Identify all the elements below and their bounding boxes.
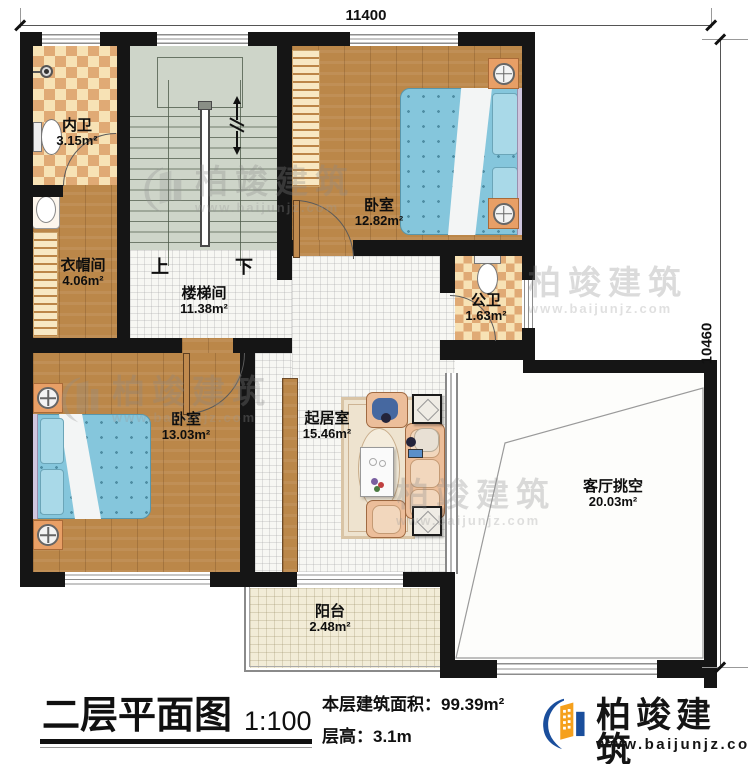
stair-railing <box>200 104 210 247</box>
stair-down-label: 下 <box>235 253 253 279</box>
room-label-living-room: 起居室15.46m² <box>303 410 351 442</box>
wall-mid-left <box>20 338 182 353</box>
nightstand <box>488 58 519 89</box>
window <box>42 32 100 46</box>
washbasin-icon <box>36 196 56 223</box>
bedroom-left-bed <box>33 414 151 519</box>
room-label-public-bath: 公卫1.63m² <box>465 292 506 324</box>
room-label-stairwell: 楼梯间11.38m² <box>180 285 228 317</box>
window <box>157 32 248 46</box>
stair-up-label: 上 <box>151 253 169 279</box>
dimension-width: 11400 <box>316 7 416 24</box>
brand-website: www.baijunjz.com <box>596 737 750 752</box>
void-outline <box>455 373 705 661</box>
wall-bedroomleft-right <box>240 353 255 573</box>
watermark: 柏竣建筑www.baijunjz.com <box>528 266 688 315</box>
side-table <box>412 506 442 536</box>
room-label-void: 客厅挑空20.03m² <box>583 478 643 510</box>
wall-mid-right <box>233 338 292 353</box>
bedroom-top-wardrobe <box>292 50 320 187</box>
wall-void-bottom-b <box>657 660 704 678</box>
wall-right-upper <box>522 32 535 250</box>
nightstand <box>33 520 63 550</box>
dimension-line-top <box>20 25 712 26</box>
wall-publicbath-left <box>440 240 455 293</box>
brand-name: 柏竣建筑 <box>596 698 750 764</box>
cloakroom-wardrobe <box>33 232 58 337</box>
floor-area-text: 本层建筑面积：99.39m² <box>322 696 504 713</box>
dimension-line-right <box>720 40 721 668</box>
window <box>497 660 657 678</box>
wall-void-right <box>704 360 717 688</box>
room-label-inner-bath: 内卫3.15m² <box>56 117 97 149</box>
bed-headboard <box>33 414 38 519</box>
floor-plan-canvas: 上 下 <box>0 0 750 764</box>
window <box>65 572 210 587</box>
stair-up-arrow-icon <box>233 96 241 104</box>
pillow <box>40 418 64 464</box>
void-railing <box>445 373 458 574</box>
wall-stair-left <box>117 32 130 340</box>
door-leaf <box>293 200 300 258</box>
person-sitting-icon <box>372 396 400 426</box>
wall-bottom-b <box>403 572 455 587</box>
room-label-bedroom-top: 卧室12.82m² <box>355 197 403 229</box>
wall-bedroomtop-bottom-a <box>277 240 293 256</box>
wall-publicbath-bottom <box>440 340 535 360</box>
stair-railing-cap <box>198 101 212 110</box>
wall-bedroomtop-bottom-b <box>353 240 522 256</box>
stair-down-arrow-icon <box>233 147 241 155</box>
balcony-door <box>297 572 403 587</box>
window <box>350 32 458 46</box>
coffee-table <box>360 447 394 497</box>
wall-innerbath-bottom <box>33 185 63 197</box>
side-table <box>412 394 442 424</box>
title-underline <box>40 739 312 744</box>
cabinet-strip <box>282 378 298 573</box>
room-label-balcony: 阳台2.48m² <box>309 603 350 635</box>
brand-logo-icon <box>536 692 592 754</box>
nightstand <box>488 198 519 229</box>
wall-void-bottom-a <box>440 660 497 678</box>
armchair <box>366 500 406 538</box>
person-sitting-icon <box>406 428 440 458</box>
pillow <box>40 469 64 515</box>
lamp-icon <box>37 524 59 546</box>
wall-left <box>20 32 33 587</box>
dimension-height: 10460 <box>699 309 716 379</box>
floor-height-text: 层高：3.1m <box>322 728 412 745</box>
drawing-title: 二层平面图 <box>42 697 232 735</box>
lamp-icon <box>493 63 515 85</box>
room-label-cloakroom: 衣帽间4.06m² <box>60 257 105 289</box>
window <box>522 280 535 328</box>
lamp-icon <box>493 203 515 225</box>
room-label-bedroom-left: 卧室13.03m² <box>162 411 210 443</box>
nightstand <box>33 383 63 413</box>
drawing-scale: 1:100 <box>244 708 312 735</box>
toilet-icon <box>477 263 498 294</box>
lamp-icon <box>37 387 59 409</box>
door-leaf <box>183 353 190 415</box>
wall-void-top <box>523 360 717 373</box>
pillow <box>492 93 518 155</box>
